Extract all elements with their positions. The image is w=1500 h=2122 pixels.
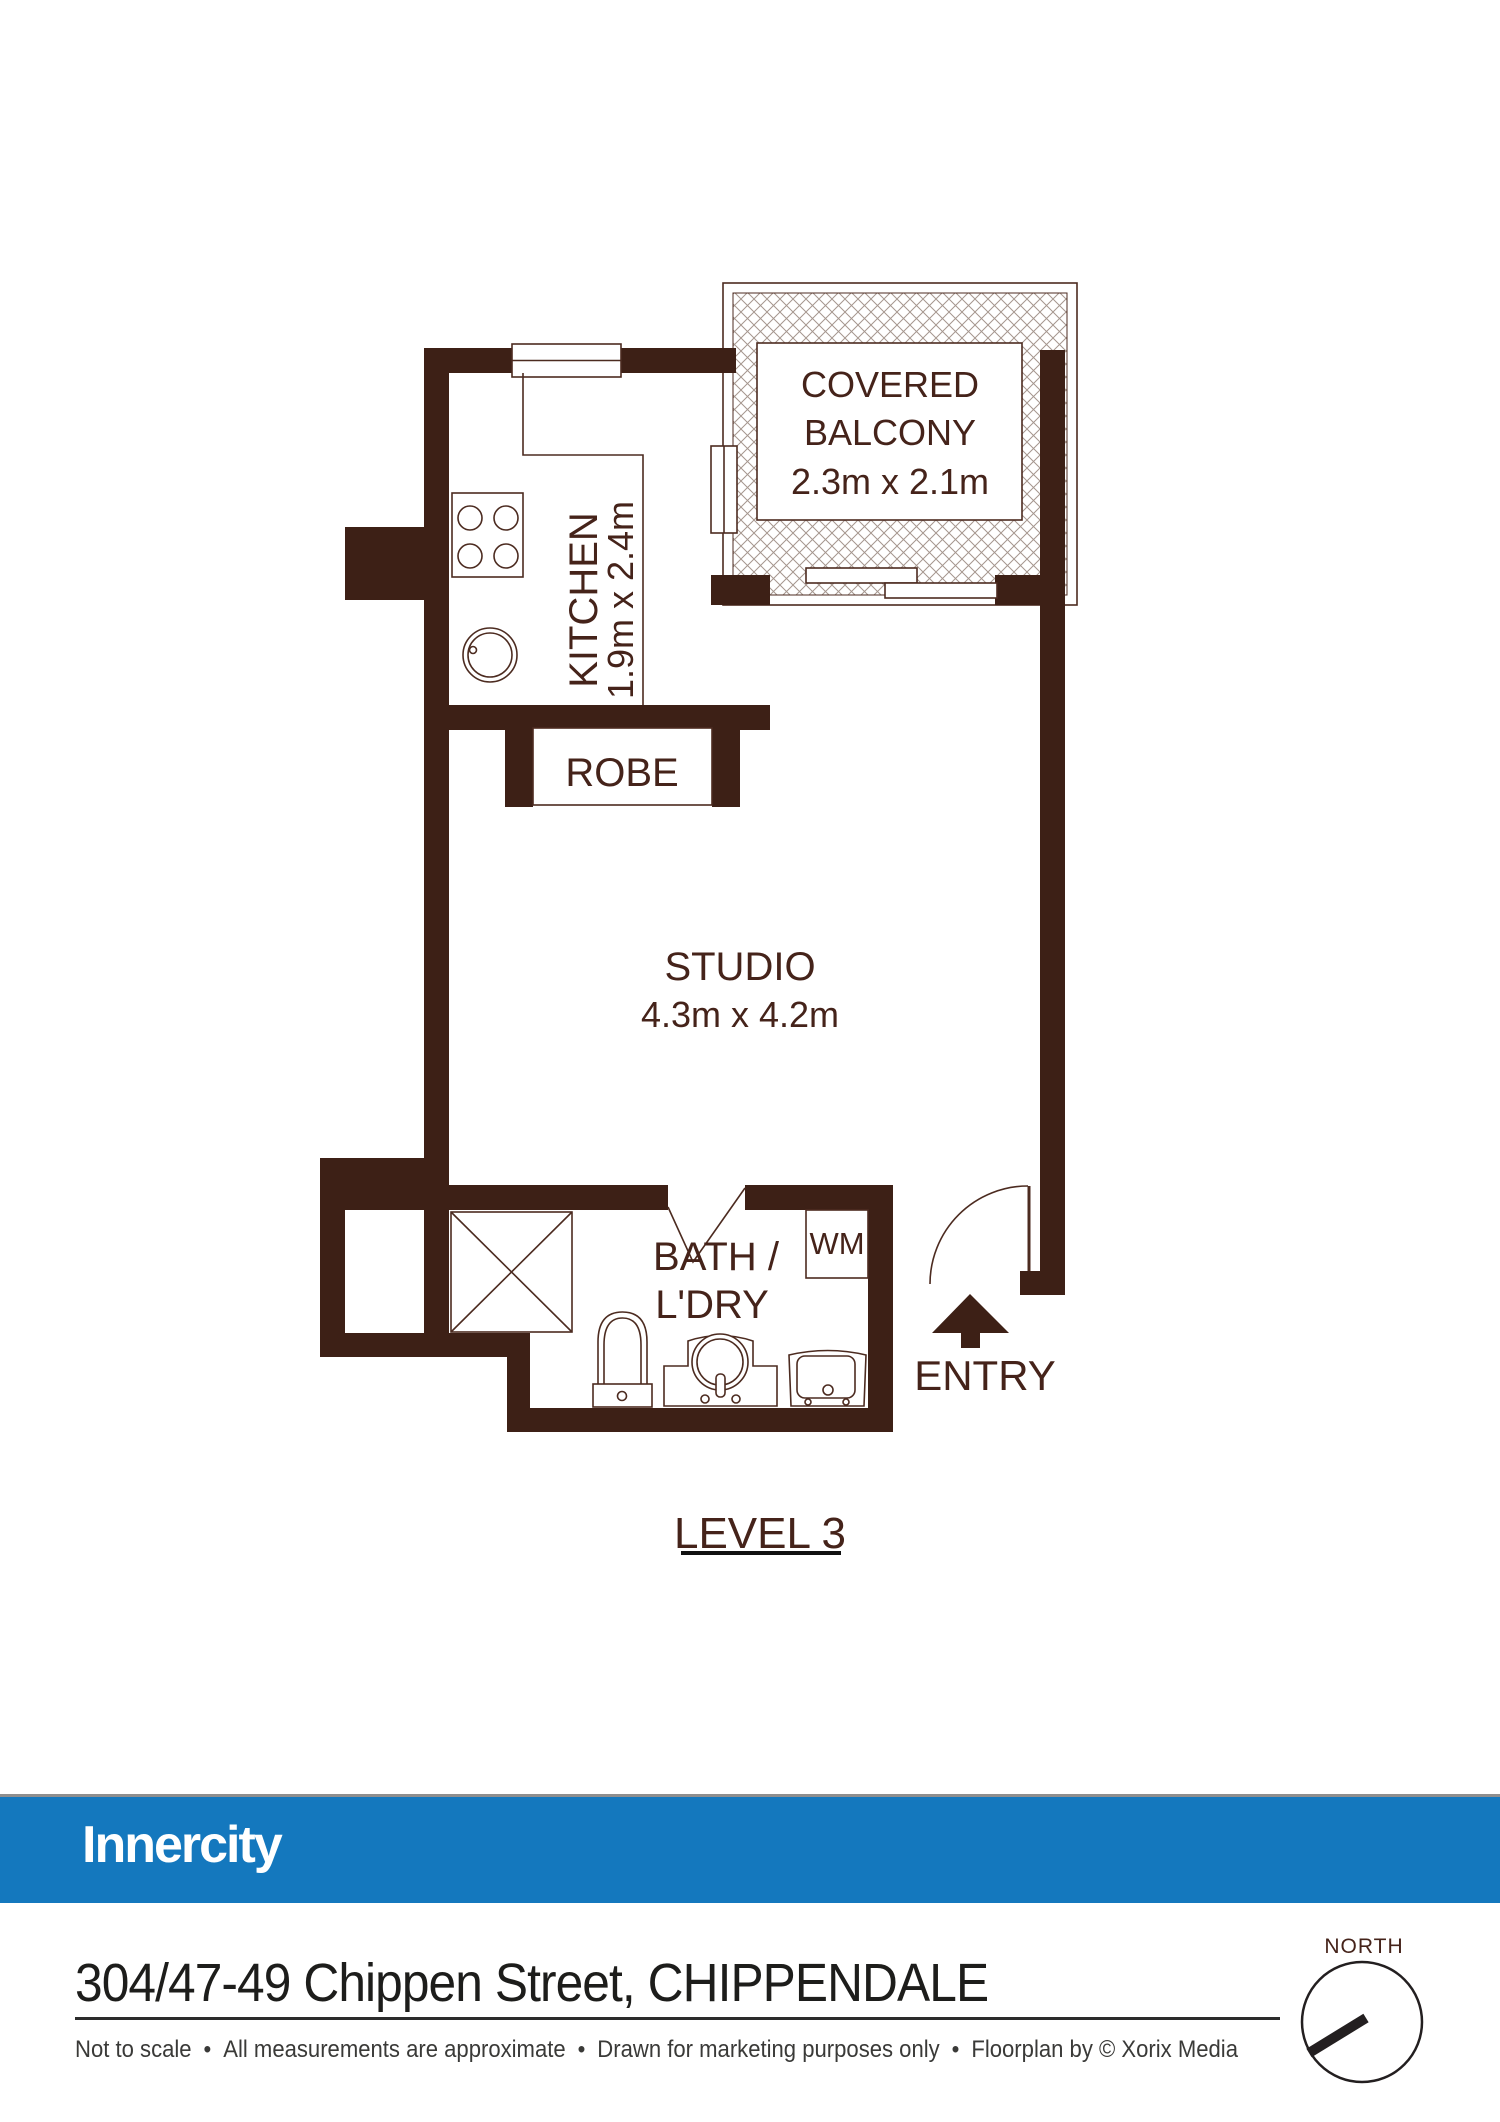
studio-label: STUDIO [664,945,815,989]
wall-bath-top-left [345,1185,668,1210]
robe: ROBE [533,728,712,805]
disclaimer-item: Not to scale [75,2036,192,2063]
vanity-basin-icon [664,1334,777,1406]
kitchen-sink-icon [463,628,517,682]
balcony-dims: 2.3m x 2.1m [791,461,989,502]
brand-banner: Innercity [0,1794,1500,1903]
bullet-separator: • [578,2036,586,2064]
brand-logo: Innercity [82,1815,281,1875]
wall-bottom [507,1408,893,1432]
wall-entry-stub [1020,1271,1065,1295]
disclaimer-item: Drawn for marketing purposes only [597,2036,939,2063]
level-label: LEVEL 3 [674,1509,846,1558]
disclaimer-item: All measurements are approximate [223,2036,565,2063]
wall-notch-horizontal [320,1333,530,1357]
disclaimer-item: Floorplan by © Xorix Media [971,2036,1238,2063]
bath-label-line1: BATH / [653,1235,780,1279]
wall-right [1040,350,1065,1295]
studio-dims: 4.3m x 4.2m [641,994,839,1035]
level-title: LEVEL 3 [674,1509,846,1558]
kitchen: KITCHEN 1.9m x 2.4m [452,373,643,705]
entry: ENTRY [914,1294,1056,1399]
wall-bath-right [868,1185,893,1432]
toilet-icon [593,1312,652,1407]
footer-divider [75,2017,1280,2020]
floorplan-page: COVERED BALCONY 2.3m x 2.1m [0,0,1500,2122]
washing-machine: WM [806,1210,868,1278]
stove-icon [452,493,523,577]
robe-label: ROBE [565,751,678,795]
balcony-sliding-door-panel-1 [806,568,917,583]
laundry-tub-icon [789,1351,866,1407]
bullet-separator: • [952,2036,960,2064]
wall-robe-right-jamb [712,730,740,807]
disclaimer-line: Not to scale•All measurements are approx… [75,2036,1238,2064]
level-underline [681,1551,841,1555]
bullet-separator: • [204,2036,212,2064]
studio: STUDIO 4.3m x 4.2m [641,945,839,1035]
balcony-sliding-door-panel-2 [885,583,997,598]
washing-machine-label: WM [809,1226,864,1261]
entry-arrow-icon [932,1294,1009,1348]
wall-robe-left-jamb [505,730,533,807]
shower-icon [451,1212,572,1332]
wall-robe-column [345,527,449,600]
balcony-label-line2: BALCONY [804,412,976,453]
wall-balcony-bottom-left [711,575,770,605]
balcony: COVERED BALCONY 2.3m x 2.1m [723,283,1077,605]
property-address: 304/47-49 Chippen Street, CHIPPENDALE [75,1952,988,2014]
compass-north-label: NORTH [1324,1935,1403,1958]
balcony-label-line1: COVERED [801,364,979,405]
entry-door-swing-arc [930,1186,1028,1284]
kitchen-dims: 1.9m x 2.4m [600,501,641,699]
bath-label-line2: L'DRY [655,1283,769,1327]
entry-label: ENTRY [914,1352,1056,1399]
compass: NORTH [1302,1935,1422,2082]
wall-robe-top [424,705,770,730]
